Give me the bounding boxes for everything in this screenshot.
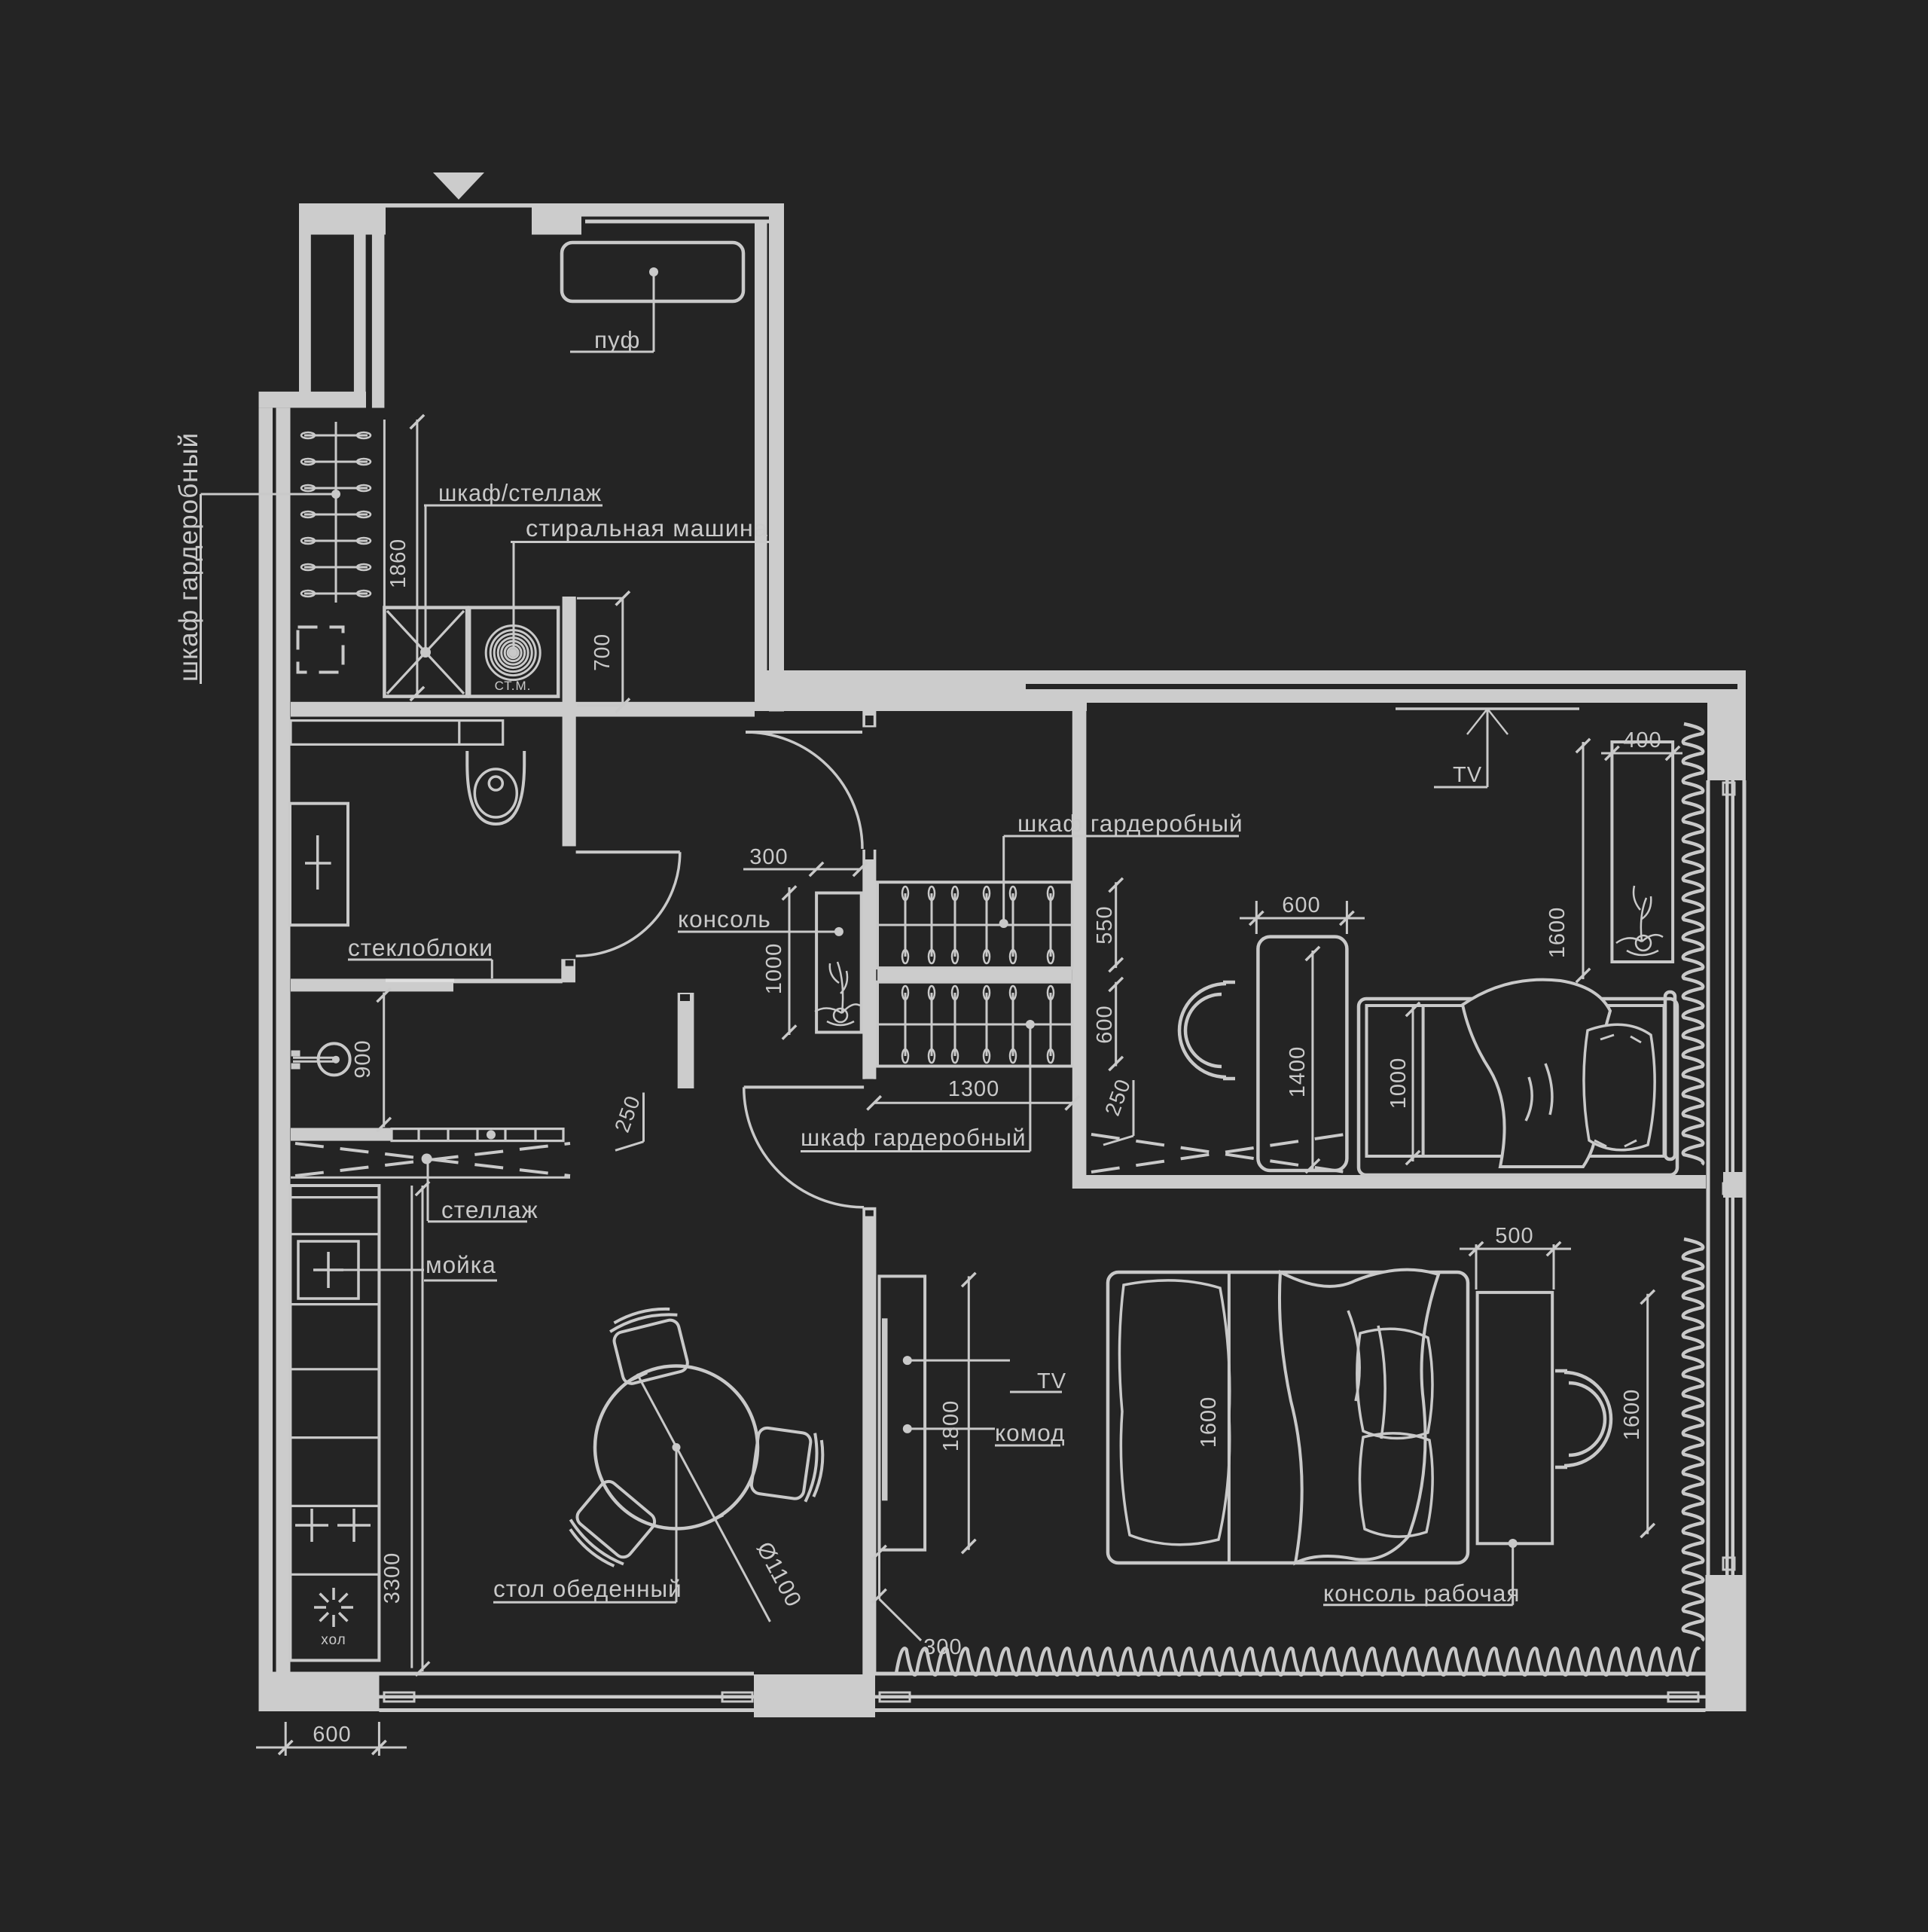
svg-text:шкаф гардеробный: шкаф гардеробный — [174, 432, 203, 682]
svg-text:шкаф гардеробный: шкаф гардеробный — [801, 1124, 1027, 1151]
svg-text:комод: комод — [995, 1419, 1066, 1446]
svg-text:1860: 1860 — [386, 539, 410, 588]
svg-text:900: 900 — [351, 1039, 375, 1078]
svg-text:1600: 1600 — [1197, 1396, 1221, 1448]
svg-text:600: 600 — [1093, 1005, 1117, 1043]
svg-text:консоль рабочая: консоль рабочая — [1323, 1579, 1520, 1607]
svg-text:стол обеденный: стол обеденный — [493, 1575, 682, 1602]
svg-text:TV: TV — [1037, 1369, 1066, 1393]
svg-text:консоль: консоль — [678, 905, 771, 932]
svg-text:1000: 1000 — [1387, 1058, 1411, 1109]
svg-text:шкаф гардеробный: шкаф гардеробный — [1017, 810, 1243, 837]
svg-text:1800: 1800 — [939, 1400, 963, 1452]
svg-text:TV: TV — [1453, 763, 1482, 787]
svg-text:600: 600 — [1282, 893, 1320, 917]
svg-text:хол: хол — [321, 1632, 346, 1648]
svg-text:1000: 1000 — [762, 943, 786, 995]
svg-text:600: 600 — [313, 1723, 351, 1747]
svg-text:1400: 1400 — [1286, 1046, 1310, 1098]
svg-text:1600: 1600 — [1620, 1389, 1644, 1441]
svg-text:300: 300 — [749, 845, 788, 869]
svg-text:400: 400 — [1623, 728, 1661, 752]
svg-text:700: 700 — [590, 633, 615, 671]
svg-text:стиральная машина: стиральная машина — [526, 514, 768, 542]
svg-text:стеклоблоки: стеклоблоки — [348, 934, 493, 961]
svg-text:1300: 1300 — [948, 1077, 1000, 1101]
svg-text:СТ.М.: СТ.М. — [495, 679, 532, 693]
svg-text:стеллаж: стеллаж — [441, 1196, 538, 1223]
svg-text:шкаф/стеллаж: шкаф/стеллаж — [438, 479, 602, 506]
svg-text:мойка: мойка — [426, 1251, 496, 1278]
svg-text:1600: 1600 — [1545, 907, 1570, 959]
svg-text:пуф: пуф — [594, 326, 640, 353]
svg-text:550: 550 — [1093, 905, 1117, 944]
svg-text:3300: 3300 — [380, 1552, 404, 1604]
svg-text:500: 500 — [1495, 1224, 1533, 1248]
